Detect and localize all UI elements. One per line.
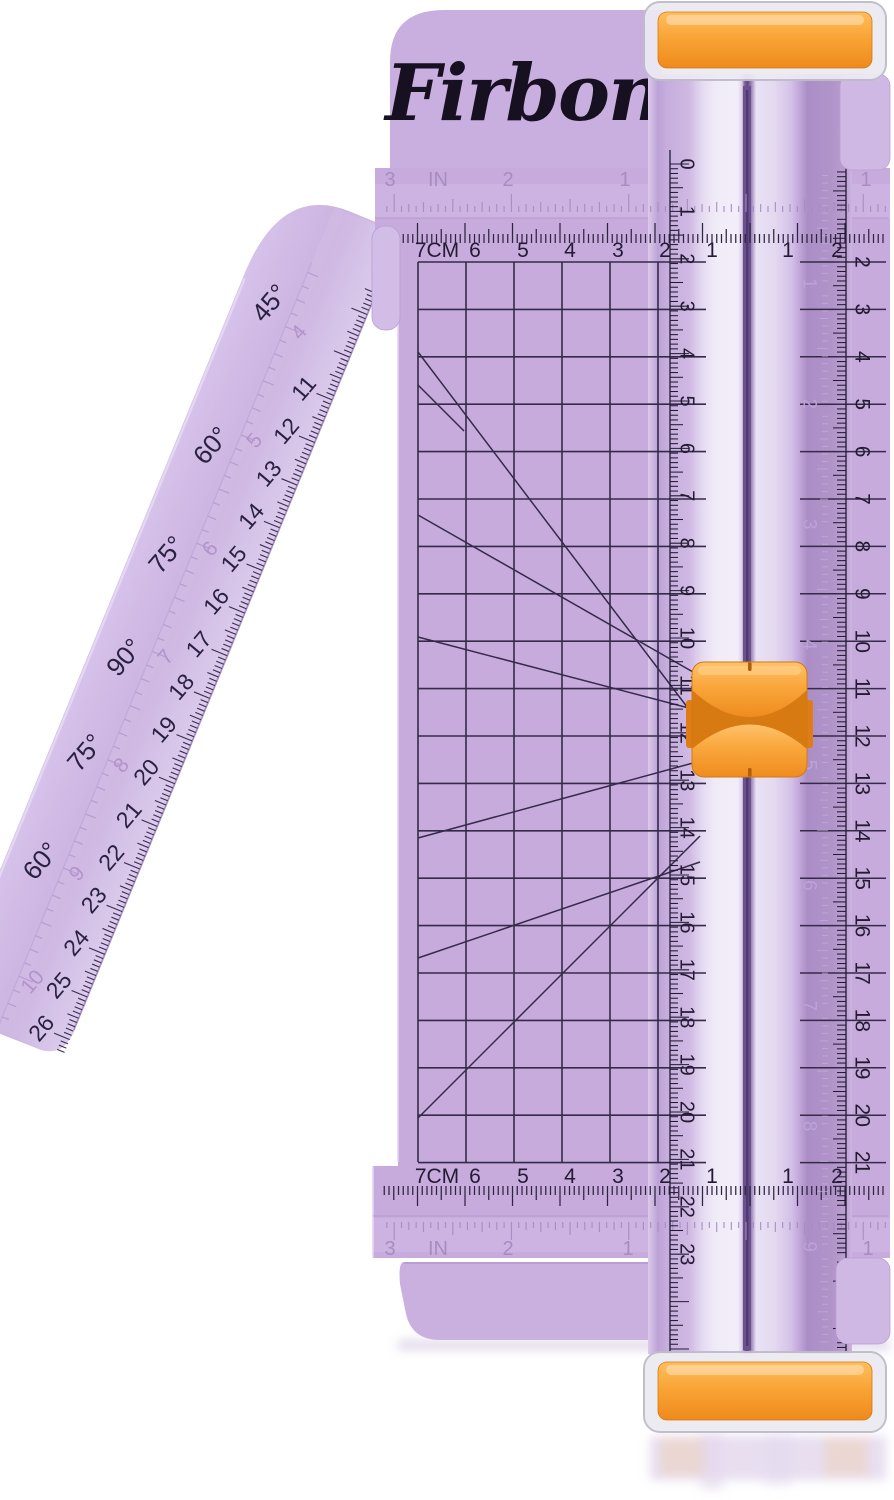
rail-left-cm-number: 4	[676, 348, 698, 359]
right-edge-cm-number: 10	[851, 630, 874, 653]
rail-left-cm-number: 5	[676, 395, 698, 406]
rail-left-cm-number: 15	[676, 864, 698, 886]
rail-left-cm-number: 18	[676, 1006, 698, 1028]
top-cm-label: 3	[612, 239, 624, 262]
right-edge-cm-number: 16	[851, 914, 874, 937]
rail-left-cm-number: 7	[676, 490, 698, 501]
rail-left-cm-number: 22	[676, 1196, 698, 1218]
rail-inch-faint-number: 1	[798, 278, 819, 289]
rail-left-cm-number: 9	[676, 585, 698, 596]
rail-left-cm-number: 19	[676, 1053, 698, 1075]
top-cm-label: 1	[782, 239, 794, 262]
right-edge-cm-number: 13	[851, 772, 874, 795]
right-edge-cm-number: 15	[851, 867, 874, 890]
bottom-inch-label: 2	[502, 1238, 513, 1260]
bottom-cm-label: 7CM	[415, 1165, 459, 1188]
bottom-cm-label: 1	[782, 1165, 794, 1188]
top-inch-label: 2	[502, 169, 513, 191]
top-inch-label: 3	[384, 169, 395, 191]
top-cm-label: 6	[469, 239, 481, 262]
right-edge-cm-number: 21	[851, 1151, 874, 1174]
rail-left-cm-number: 10	[676, 627, 698, 649]
bottom-cm-label: 4	[564, 1165, 576, 1188]
bottom-inch-label: 1	[622, 1238, 633, 1260]
bottom-inch-label: 3	[384, 1238, 395, 1260]
bottom-cm-label: 2	[831, 1165, 843, 1188]
top-cm-label: 2	[831, 239, 843, 262]
right-edge-cm-number: 5	[851, 398, 874, 410]
top-cm-label: 1	[706, 239, 718, 262]
rail-left-cm-number: 8	[676, 538, 698, 549]
rail-inch-faint-number: 9	[798, 1241, 819, 1252]
right-edge-cm-number: 3	[851, 304, 874, 316]
right-edge-cm-number: 20	[851, 1104, 874, 1127]
top-cm-label: 2	[659, 239, 671, 262]
right-edge-cm-number: 14	[851, 819, 874, 843]
bottom-inch-label: 1	[862, 1238, 873, 1260]
bottom-cm-label: 5	[517, 1165, 529, 1188]
rail-left-cm-number: 21	[676, 1148, 698, 1170]
rail-left-cm-number: 23	[676, 1243, 698, 1265]
right-edge-cm-number: 8	[851, 541, 874, 553]
top-inch-label: 1	[619, 169, 630, 191]
rail-inch-faint-number: 3	[798, 519, 819, 530]
top-right-tab	[840, 74, 890, 170]
top-inch-label: 1	[860, 169, 871, 191]
bottom-inch-label: IN	[428, 1238, 448, 1260]
right-edge-cm-number: 4	[851, 351, 874, 363]
brand-logo: Firbon	[383, 48, 662, 139]
bottom-cm-label: 6	[469, 1165, 481, 1188]
rail-left-cm-number: 6	[676, 443, 698, 454]
top-cm-label: 7CM	[415, 239, 459, 262]
rail-left-cm-number: 17	[676, 959, 698, 981]
arm-pivot-boss	[372, 226, 400, 330]
right-edge-cm-number: 19	[851, 1056, 874, 1079]
rail-left-cm-number: 3	[676, 301, 698, 312]
rail-left-cm-number: 14	[676, 816, 698, 838]
right-edge-cm-number: 2	[851, 256, 874, 268]
bottom-cm-label: 2	[659, 1165, 671, 1188]
bottom-cm-label: 1	[706, 1165, 718, 1188]
rail-left-cm-number: 1	[676, 206, 698, 217]
right-edge-cm-number: 12	[851, 724, 874, 747]
top-inch-label: IN	[428, 169, 448, 191]
top-cm-label: 5	[517, 239, 529, 262]
rail-inch-faint-number: 6	[798, 880, 819, 891]
top-cm-label: 4	[564, 239, 576, 262]
blade-slider	[686, 662, 813, 777]
bottom-cm-label: 3	[612, 1165, 624, 1188]
right-edge-cm-number: 18	[851, 1009, 874, 1032]
right-edge-cm-number: 6	[851, 446, 874, 458]
rail-left-cm-number: 20	[676, 1101, 698, 1123]
right-edge-cm-number: 9	[851, 588, 874, 600]
rail-inch-faint-number: 2	[798, 399, 819, 410]
rail-inch-faint-number: 8	[798, 1121, 819, 1132]
rail-left-cm-number: 0	[676, 158, 698, 169]
right-edge-cm-number: 7	[851, 493, 874, 505]
right-edge-cm-number: 17	[851, 961, 874, 984]
rail-left-cm-number: 2	[676, 253, 698, 264]
bottom-right-tab	[836, 1258, 890, 1344]
rail-inch-faint-number: 4	[798, 639, 819, 650]
swing-ruler-arm: 1112131415161718192021222324252645678910…	[0, 183, 402, 1059]
right-edge-cm-number: 11	[851, 678, 874, 700]
rail-left-cm-number: 16	[676, 911, 698, 933]
paper-trimmer-photo: 1112131415161718192021222324252645678910…	[0, 0, 894, 1500]
rail-inch-faint-number: 7	[798, 1001, 819, 1012]
